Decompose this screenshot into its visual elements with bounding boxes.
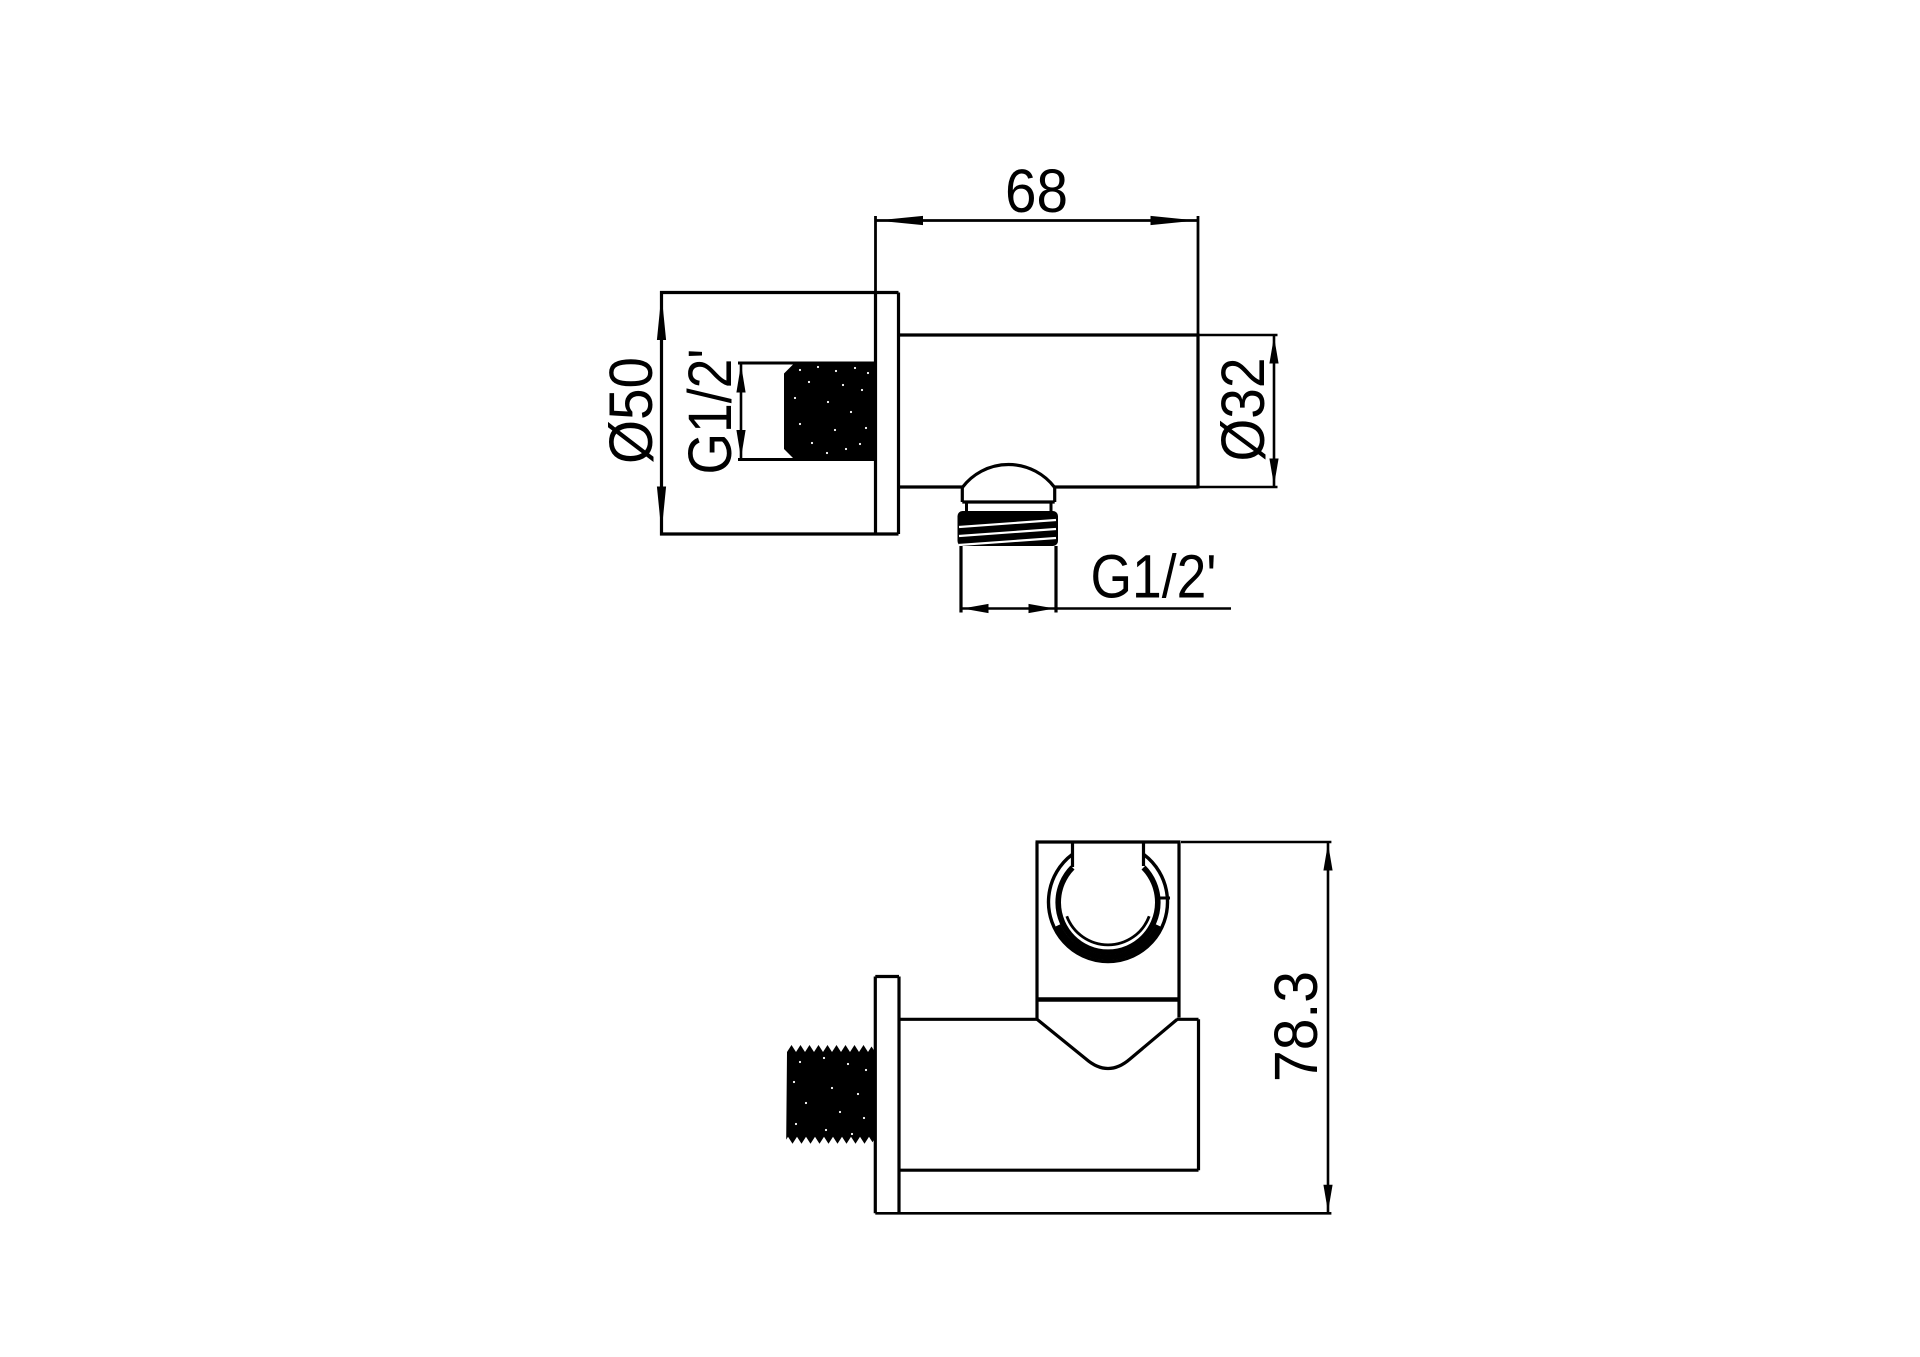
svg-text:G1/2': G1/2' [1091, 543, 1217, 611]
svg-text:68: 68 [1005, 157, 1068, 225]
svg-text:Ø50: Ø50 [597, 357, 665, 464]
svg-text:Ø32: Ø32 [1209, 358, 1277, 462]
svg-text:78.3: 78.3 [1262, 971, 1330, 1082]
svg-text:G1/2': G1/2' [676, 349, 744, 475]
